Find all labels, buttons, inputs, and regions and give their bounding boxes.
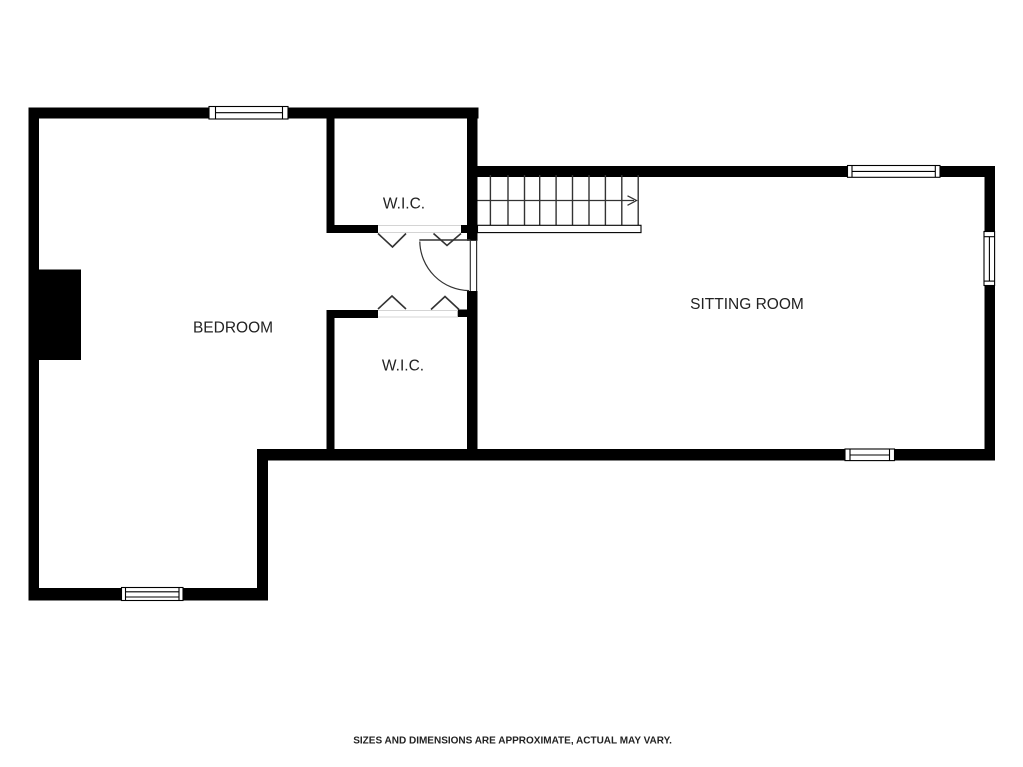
svg-text:W.I.C.: W.I.C. (382, 357, 424, 374)
svg-text:BEDROOM: BEDROOM (193, 319, 273, 336)
svg-text:SIZES AND DIMENSIONS ARE APPRO: SIZES AND DIMENSIONS ARE APPROXIMATE, AC… (353, 736, 672, 747)
svg-text:SITTING ROOM: SITTING ROOM (690, 296, 804, 313)
svg-text:W.I.C.: W.I.C. (383, 195, 425, 212)
